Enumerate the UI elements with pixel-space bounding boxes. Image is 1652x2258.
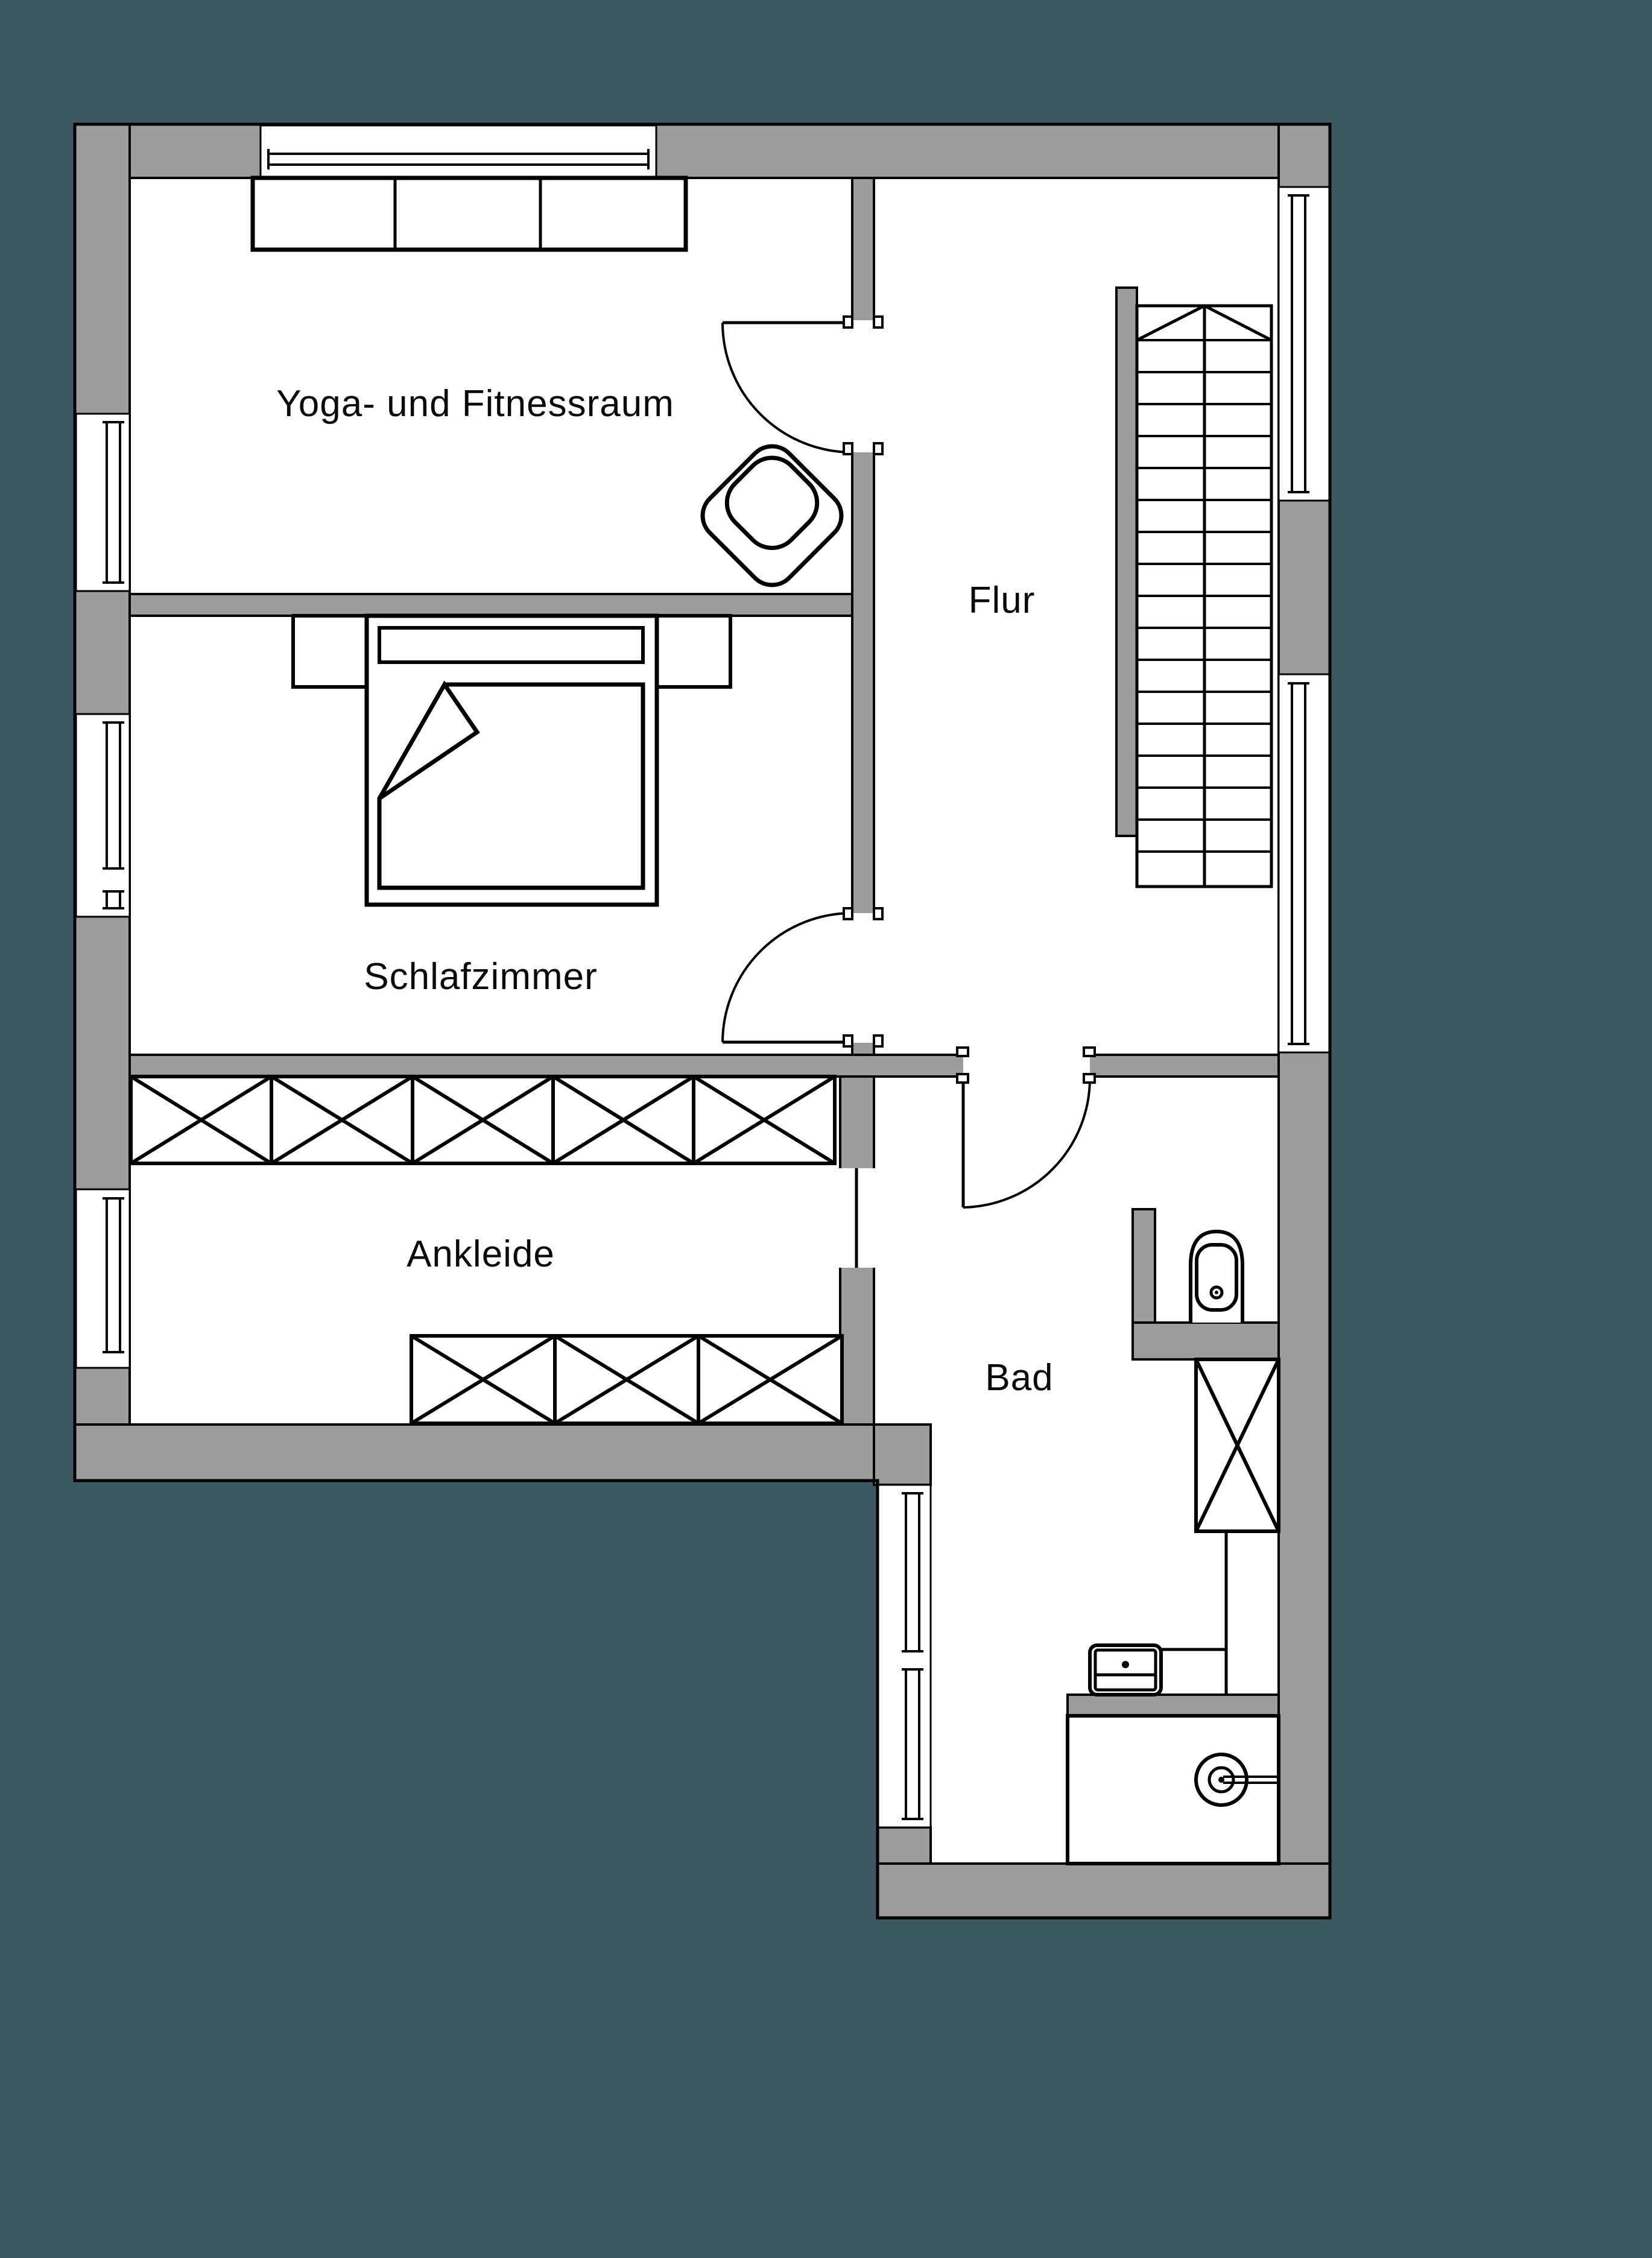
wardrobe-top	[131, 1077, 835, 1163]
wardrobe-bottom	[411, 1336, 842, 1423]
window-top	[261, 125, 656, 178]
wall-schlafzimmer-ankleide	[130, 1055, 1279, 1077]
wall-yoga-schlafzimmer	[130, 594, 852, 616]
window-left-2	[76, 714, 130, 917]
nightstand-right	[657, 616, 730, 687]
wall-extension-bottom	[878, 1864, 1330, 1918]
opening-yoga-door	[851, 320, 875, 452]
opening-bad-door	[963, 1054, 1090, 1078]
window-extension-left	[878, 1485, 931, 1827]
label-yoga: Yoga- und Fitnessraum	[276, 383, 674, 425]
window-left-1	[76, 414, 130, 591]
bed	[367, 616, 657, 905]
wall-stair-strip	[1116, 288, 1137, 836]
window-right-2	[1279, 674, 1330, 1052]
wall-extension-corner	[874, 1425, 931, 1485]
washbasin	[1090, 1645, 1161, 1695]
wall-toilet-band	[1133, 1323, 1279, 1359]
toilet	[1191, 1232, 1242, 1323]
window-left-3	[76, 1189, 130, 1368]
label-bad: Bad	[985, 1357, 1053, 1399]
wall-toilet-stub	[1133, 1209, 1155, 1323]
shower	[1196, 1359, 1279, 1531]
sideboard	[253, 178, 686, 250]
window-right-1	[1279, 187, 1330, 501]
wall-ankleide-bottom	[75, 1425, 874, 1481]
floorplan: Yoga- und Fitnessraum Flur Schlafzimmer …	[0, 0, 1652, 2258]
nightstand-left	[293, 616, 367, 687]
label-flur: Flur	[969, 580, 1036, 621]
label-ankleide: Ankleide	[407, 1233, 555, 1275]
opening-schlafzimmer-door	[851, 913, 875, 1043]
bathtub	[1068, 1716, 1279, 1864]
wall-counter-band	[1068, 1695, 1279, 1716]
label-schlafzimmer: Schlafzimmer	[364, 956, 598, 998]
